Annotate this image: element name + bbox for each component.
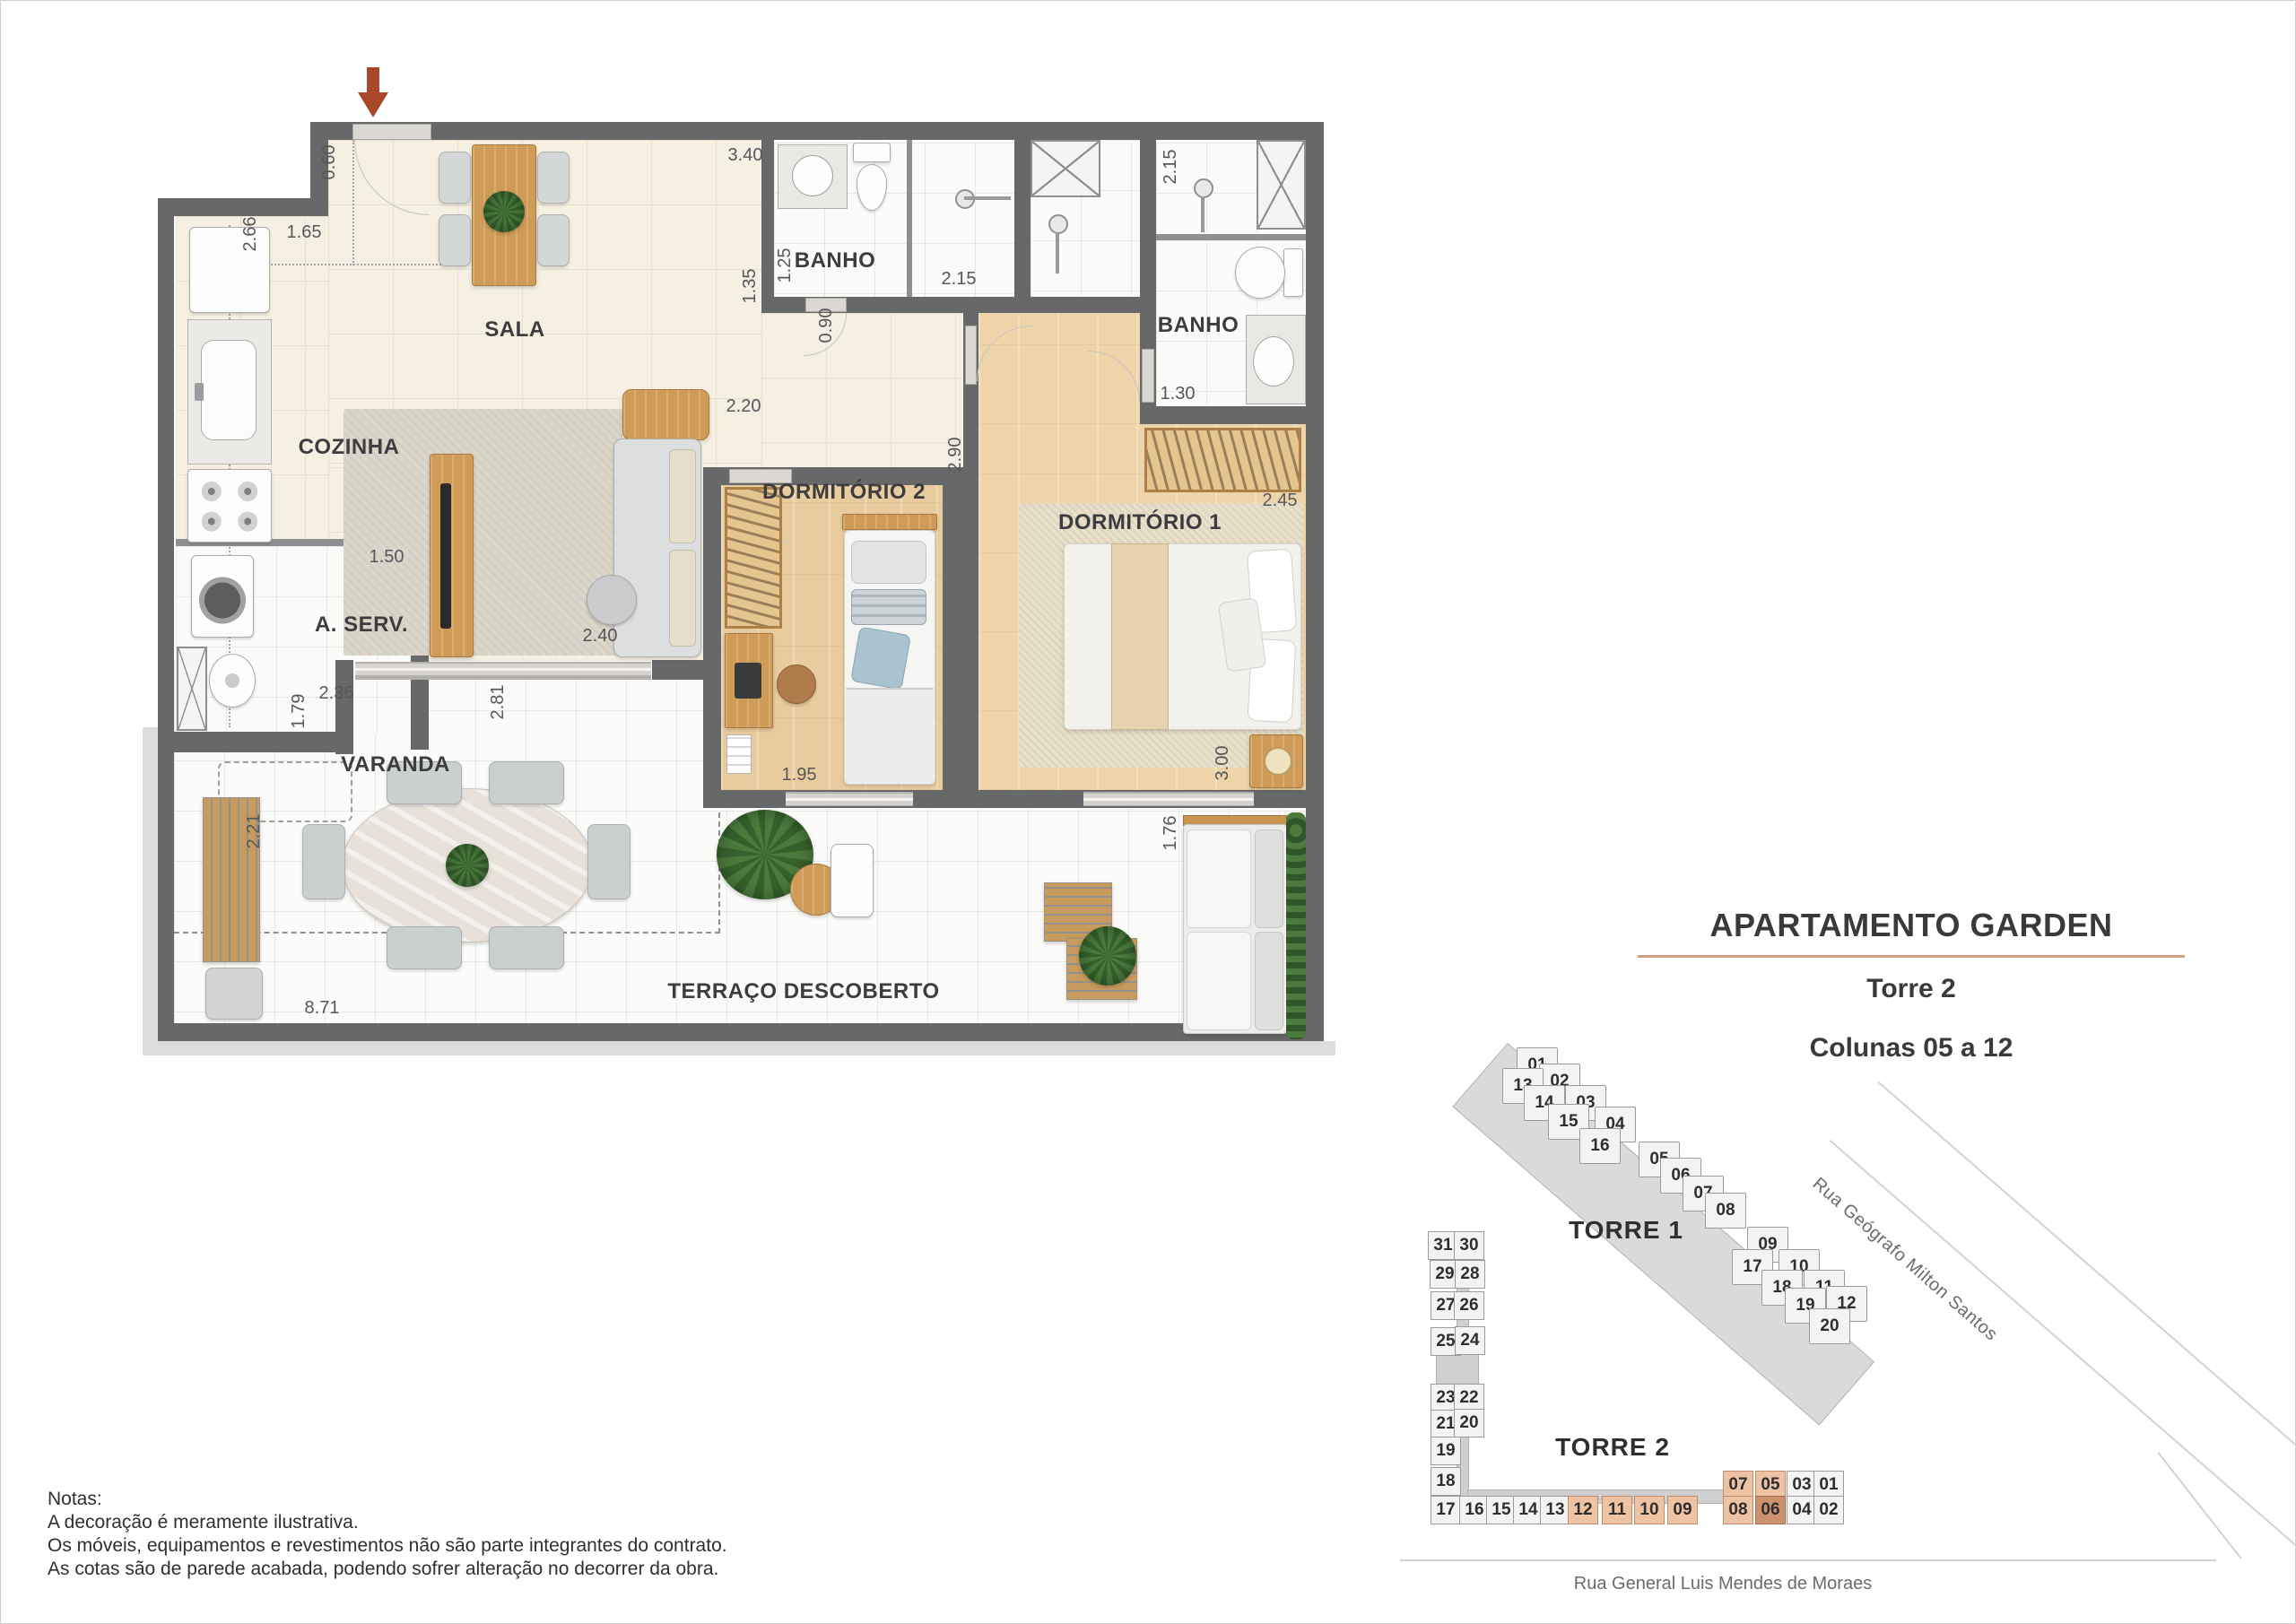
grill [205, 968, 263, 1020]
dorm2-headboard [842, 514, 937, 530]
kitchen-sink [201, 340, 257, 440]
dorm1-lamp [1264, 747, 1292, 776]
wall-dorm2-right [943, 467, 963, 808]
dimension-label: 1.50 [370, 548, 404, 566]
unit-cell: 30 [1454, 1231, 1484, 1260]
note-line: A decoração é meramente ilustrativa. [48, 1511, 727, 1534]
room-label-dormitorio-1: DORMITÓRIO 1 [1058, 510, 1222, 535]
dorm1-door [965, 326, 977, 385]
dimension-label: 2.21 [245, 814, 263, 849]
dimension-label: 1.65 [287, 223, 322, 241]
dimension-label: 2.66 [241, 217, 259, 252]
unit-cell: 28 [1455, 1260, 1485, 1289]
wall-banho1-left [761, 140, 774, 313]
page-title: APARTAMENTO GARDEN [1597, 907, 2225, 944]
sofa-cushion [669, 449, 696, 543]
dimension-label: 3.40 [728, 146, 763, 164]
unit-cell: 20 [1454, 1409, 1484, 1437]
wall-right [1306, 122, 1324, 1041]
unit-cell: 24 [1455, 1326, 1485, 1355]
dimension-label: 3.00 [1213, 746, 1231, 781]
unit-cell: 13 [1540, 1496, 1570, 1524]
wall-banho1-divider [907, 140, 912, 297]
dimension-label: 1.79 [290, 694, 308, 729]
unit-cell: 14 [1513, 1496, 1544, 1524]
unit-cell: 02 [1813, 1496, 1844, 1524]
wall-aserv-bottom [158, 732, 335, 752]
wall-dorm2-left [703, 467, 721, 808]
floor-plan: 0.601.652.663.401.351.252.152.150.901.30… [117, 55, 1382, 1104]
wall-left [158, 198, 174, 1041]
table-plant [483, 191, 525, 232]
room-label-banho-2: BANHO [1158, 313, 1239, 338]
shaft-box-1 [1031, 140, 1100, 197]
dorm1-runner [1111, 543, 1169, 730]
dimension-label: 2.45 [1263, 491, 1298, 509]
note-line: As cotas são de parede acabada, podendo … [48, 1558, 727, 1581]
room-label-terraco: TERRAÇO DESCOBERTO [667, 979, 939, 1004]
dimension-label: 1.35 [741, 269, 759, 304]
road-line-diagonal [1878, 1081, 2296, 1530]
unit-cell: 09 [1667, 1496, 1698, 1524]
dimension-label: 1.95 [782, 766, 817, 784]
outdoor-sofa-cushion [1187, 932, 1251, 1030]
unit-cell: 20 [1809, 1308, 1850, 1344]
apron-left [143, 727, 158, 1055]
dimension-label: 2.40 [583, 627, 618, 645]
entry-arrow-icon [358, 67, 388, 119]
dimension-label: 1.25 [776, 248, 794, 283]
shaft-box-2 [1257, 140, 1306, 230]
dorm2-chair [777, 664, 816, 704]
wall-varanda-stub-right [652, 660, 703, 680]
shower-arm [964, 196, 1011, 200]
shower-arm [1056, 232, 1059, 274]
unit-cell: 16 [1579, 1128, 1621, 1164]
unit-cell: 10 [1634, 1496, 1665, 1524]
notes: Notas: A decoração é meramente ilustrati… [48, 1488, 727, 1581]
kitchen-faucet [195, 383, 204, 401]
unit-cell: 12 [1568, 1496, 1598, 1524]
shaft-box-aserv [177, 647, 207, 731]
dimension-label: 2.15 [942, 270, 977, 288]
unit-cell: 08 [1705, 1193, 1746, 1229]
dimension-label: 2.36 [319, 684, 354, 702]
room-label-banho-1: BANHO [795, 248, 876, 274]
unit-cell: 18 [1431, 1467, 1461, 1496]
torre1-label: TORRE 1 [1569, 1216, 1683, 1245]
wall-bottom [158, 1023, 1324, 1041]
dorm2-pillow [851, 541, 926, 584]
entry-guide-v [352, 140, 354, 265]
page-canvas: 0.601.652.663.401.351.252.152.150.901.30… [0, 0, 2296, 1624]
room-label-varanda: VARANDA [341, 752, 450, 777]
shower-arm [1201, 196, 1205, 232]
dining-chair [439, 152, 471, 204]
wall-varanda-stub-left [335, 660, 353, 754]
dorm2-cushion [850, 626, 911, 690]
wall-top [310, 122, 1324, 140]
hall-floor [761, 313, 963, 467]
sala-slider-window [355, 662, 651, 680]
table-plant [446, 844, 489, 887]
dorm2-wardrobe [725, 487, 782, 629]
street-label-bottom: Rua General Luis Mendes de Moraes [1561, 1574, 1884, 1594]
side-table-round [587, 575, 637, 625]
unit-cell: 04 [1787, 1496, 1817, 1524]
dimension-label: 1.30 [1161, 385, 1196, 403]
notes-heading: Notas: [48, 1488, 727, 1511]
water-heater [209, 654, 256, 708]
subtitle-torre: Torre 2 [1597, 974, 2225, 1004]
stove [187, 469, 272, 543]
dining-chair [537, 152, 570, 204]
road-line-bottom [1400, 1559, 2216, 1561]
terrace-chair [587, 824, 631, 899]
torre2-corridor-corner [1436, 1350, 1479, 1388]
dorm1-window [1083, 792, 1254, 806]
room-label-dormitorio-2: DORMITÓRIO 2 [762, 480, 926, 505]
unit-cell: 11 [1602, 1496, 1632, 1524]
outdoor-sofa-cushion [1187, 829, 1251, 928]
road-line-connector [2157, 1452, 2241, 1559]
unit-cell: 06 [1755, 1496, 1786, 1524]
unit-cell: 08 [1723, 1496, 1753, 1524]
dimension-label: 1.76 [1161, 816, 1179, 851]
unit-cell: 16 [1459, 1496, 1490, 1524]
banho2-toilet-bowl [1235, 247, 1285, 299]
terrace-chair [489, 761, 564, 804]
dining-chair [537, 214, 570, 266]
deck-plant [1079, 926, 1136, 986]
shower-knob [1048, 214, 1068, 234]
dimension-label: 2.15 [1161, 150, 1179, 185]
terrace-chair [489, 926, 564, 969]
road-line-diagonal [1830, 1140, 2296, 1553]
terrace-chair [302, 824, 345, 899]
apron-bottom [143, 1041, 1335, 1055]
wall-step-h [158, 198, 328, 216]
outdoor-sofa-cushion [1255, 932, 1283, 1030]
site-plan: TORRE 1 TORRE 2 Rua Geógrafo Milton Sant… [1400, 1005, 2296, 1624]
lounge-chair [831, 844, 874, 917]
unit-cell: 26 [1454, 1291, 1484, 1320]
wall-banho2-bottom [1140, 406, 1324, 424]
outdoor-sofa-cushion [1255, 829, 1283, 928]
hedge-plants [1286, 812, 1306, 1039]
dimension-label: 2.20 [726, 397, 761, 415]
banho2-toilet-tank [1283, 248, 1303, 297]
wall-shaft [1014, 140, 1031, 313]
dorm2-books [726, 734, 752, 774]
unit-cell: 15 [1486, 1496, 1517, 1524]
washer [191, 555, 254, 638]
terraco-dash-v [718, 812, 720, 934]
dorm2-window [786, 792, 913, 806]
sofa-cushion [669, 550, 696, 647]
banho2-sink-bowl [1253, 336, 1294, 386]
dining-chair [439, 214, 471, 266]
dimension-label: 2.90 [946, 438, 964, 473]
unit-cell: 17 [1431, 1496, 1461, 1524]
entry-door [352, 124, 431, 140]
banho1-sink-bowl [792, 155, 833, 196]
banho2-door [1142, 349, 1154, 403]
dimension-label: 2.81 [489, 685, 507, 720]
room-label-area-servico: A. SERV. [315, 612, 408, 638]
shower-knob [1194, 178, 1213, 198]
unit-cell: 19 [1431, 1437, 1461, 1465]
dorm2-laptop [735, 663, 761, 699]
dorm2-blanket [846, 688, 934, 783]
room-label-cozinha: COZINHA [299, 435, 400, 460]
dorm1-wardrobe [1144, 428, 1301, 492]
dorm2-pillow [851, 589, 926, 625]
wall-dorm1-left [963, 313, 978, 808]
tv [440, 483, 451, 629]
console-table [622, 389, 709, 440]
room-label-sala: SALA [484, 317, 544, 343]
terrace-chair [387, 926, 462, 969]
banho1-toilet-tank [853, 143, 891, 162]
dimension-label: 0.90 [817, 308, 835, 343]
title-underline [1638, 955, 2185, 958]
wall-banho2-divider [1156, 234, 1306, 240]
torre2-label: TORRE 2 [1555, 1433, 1670, 1462]
dimension-label: 8.71 [305, 999, 340, 1017]
dimension-label: 0.60 [320, 145, 338, 180]
note-line: Os móveis, equipamentos e revestimentos … [48, 1534, 727, 1558]
tv-panel [430, 454, 474, 657]
